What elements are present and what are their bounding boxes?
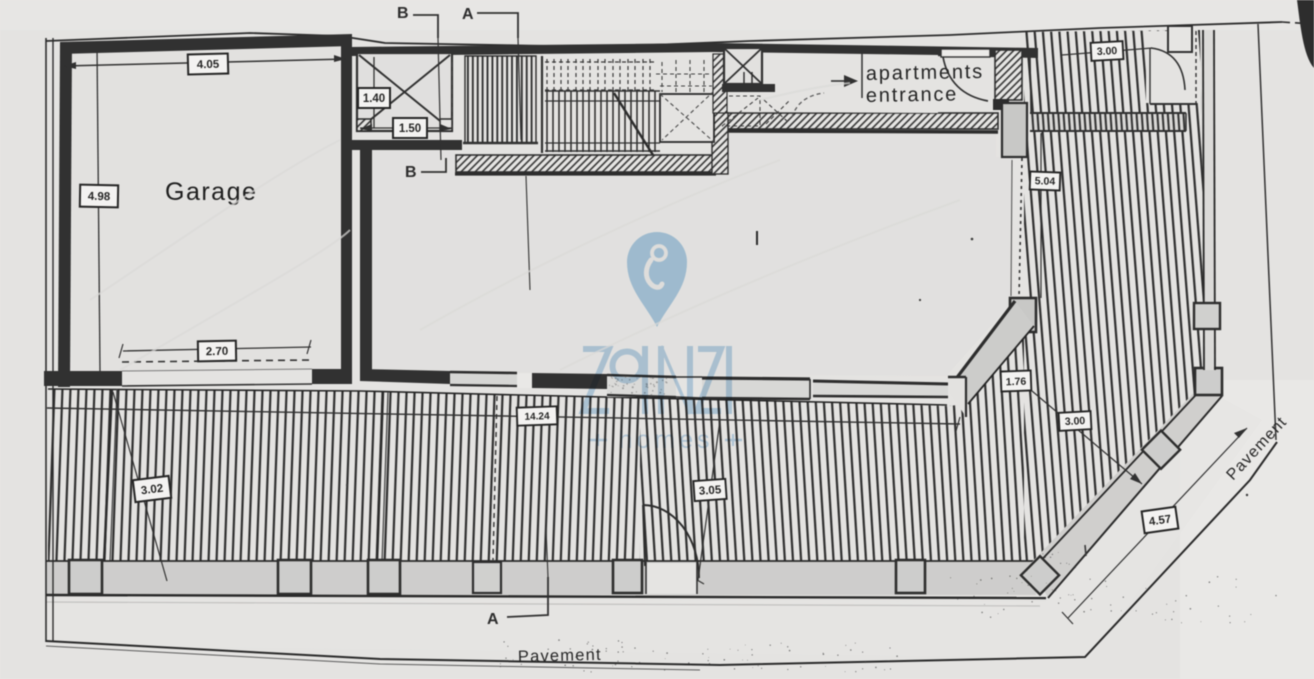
svg-text:Pavement: Pavement (518, 646, 602, 666)
svg-text:1.50: 1.50 (399, 123, 421, 135)
svg-text:4.05: 4.05 (197, 59, 220, 72)
svg-text:B: B (405, 164, 417, 181)
svg-text:Garage: Garage (165, 178, 257, 206)
svg-text:homes: homes (618, 426, 713, 454)
svg-text:apartments: apartments (866, 61, 984, 85)
svg-text:5.04: 5.04 (1035, 175, 1056, 188)
svg-text:2.70: 2.70 (206, 346, 229, 358)
svg-text:4.98: 4.98 (88, 191, 111, 203)
svg-text:3.00: 3.00 (1097, 45, 1118, 58)
svg-text:1.40: 1.40 (363, 93, 385, 105)
svg-text:14.24: 14.24 (524, 411, 550, 423)
svg-text:A: A (462, 6, 474, 23)
svg-text:B: B (397, 5, 409, 22)
svg-text:3.05: 3.05 (698, 484, 722, 498)
svg-text:entrance: entrance (866, 83, 959, 107)
svg-text:1.76: 1.76 (1006, 376, 1027, 389)
svg-text:3.00: 3.00 (1065, 415, 1086, 428)
svg-text:A: A (487, 611, 499, 628)
